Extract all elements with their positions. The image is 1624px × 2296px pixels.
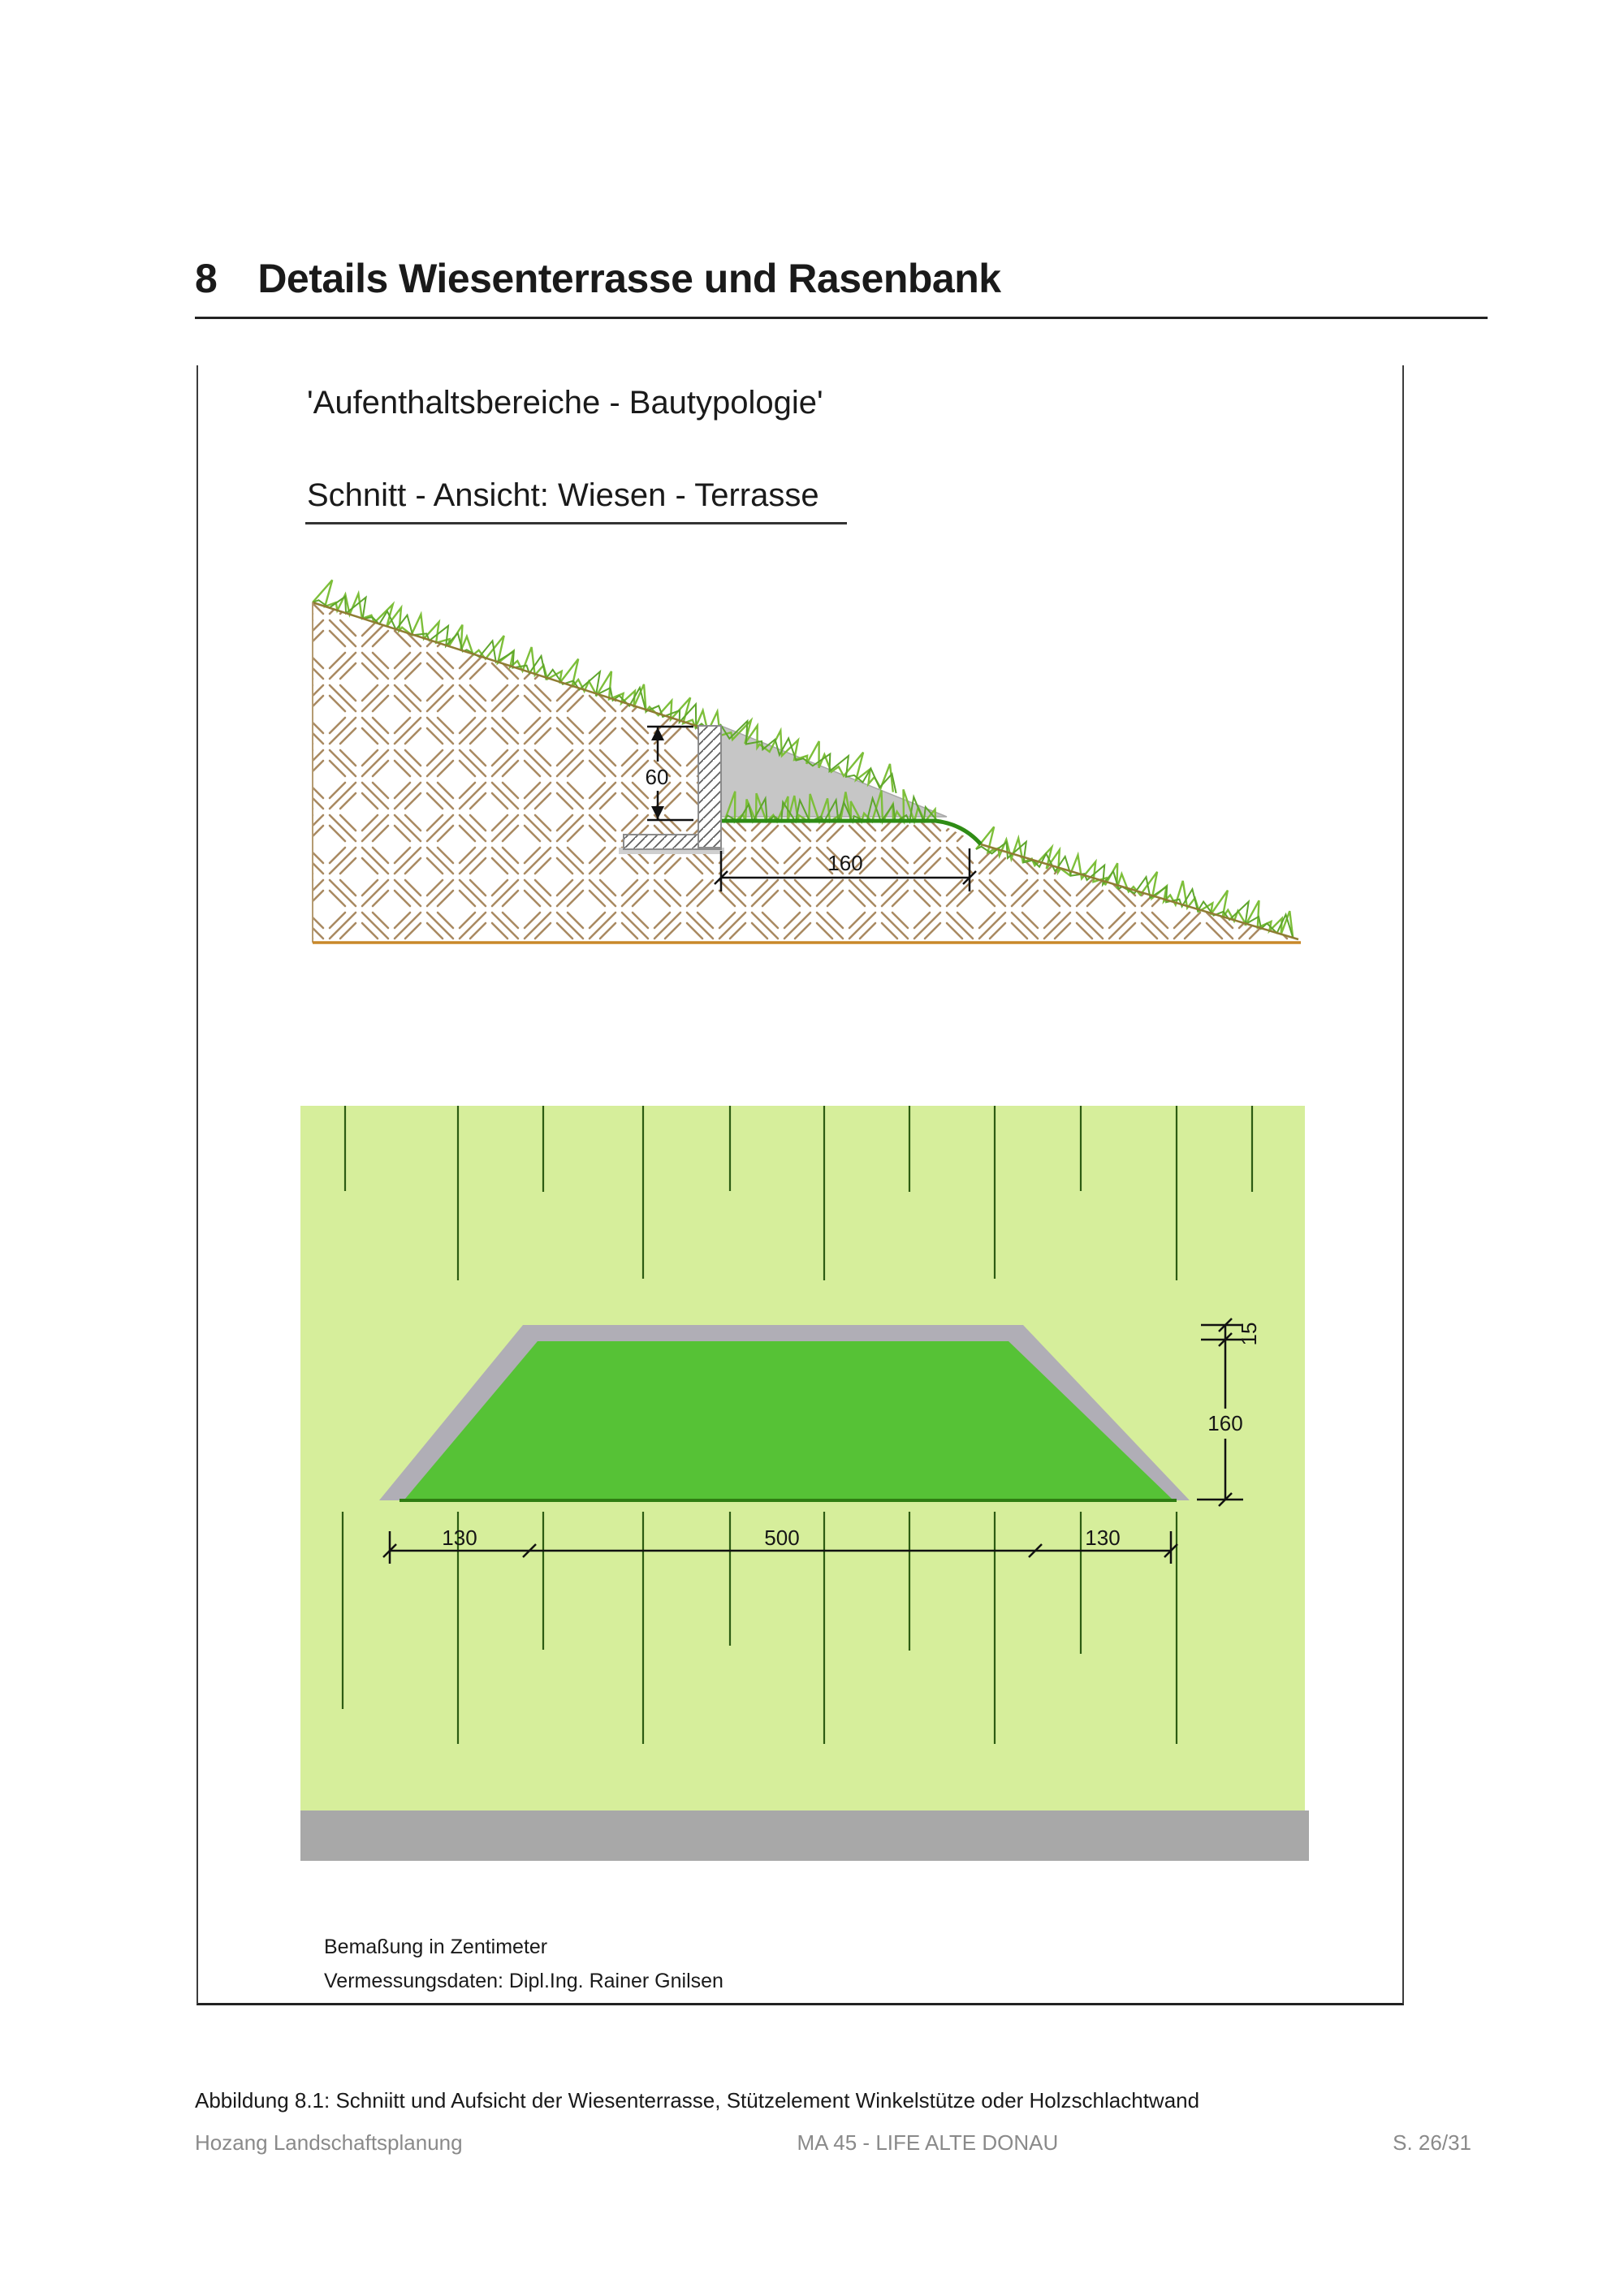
dim-label-wall-height: 60 [646,765,669,789]
note-scale: Bemaßung in Zentimeter [324,1936,547,1959]
figure-drawing: 60 160 [198,365,1402,2003]
cross-section-drawing: 60 160 [313,580,1301,943]
dim-label-depth: 160 [1207,1411,1242,1435]
footer-company: Hozang Landschaftsplanung [195,2130,463,2156]
title-rule [195,317,1488,319]
document-page: 8 Details Wiesenterrasse und Rasenbank [0,0,1624,2296]
plan-view-drawing: 15 160 130 500 130 [300,1106,1309,1861]
page-footer: Hozang Landschaftsplanung MA 45 - LIFE A… [195,2130,1471,2156]
dim-label-right: 130 [1085,1526,1120,1550]
figure-section-title: Schnitt - Ansicht: Wiesen - Terrasse [305,477,847,524]
dim-label-width: 500 [764,1526,799,1550]
figure-frame: 60 160 [197,365,1404,2005]
dim-label-terrace-width: 160 [827,851,862,875]
figure-caption: Abbildung 8.1: Schniitt und Aufsicht der… [195,2088,1494,2113]
footer-page-number: S. 26/31 [1393,2130,1471,2156]
dim-label-edge: 15 [1237,1323,1261,1346]
figure-subtitle: 'Aufenthaltsbereiche - Bautypologie' [307,385,823,421]
note-surveyor: Vermessungsdaten: Dipl.Ing. Rainer Gnils… [324,1970,723,1993]
chapter-title: Details Wiesenterrasse und Rasenbank [257,255,1000,302]
dim-label-left: 130 [442,1526,477,1550]
wall-stem [698,726,721,848]
footing-bar [300,1810,1309,1861]
chapter-number: 8 [195,255,217,302]
page-title: 8 Details Wiesenterrasse und Rasenbank [195,255,1001,302]
footer-project: MA 45 - LIFE ALTE DONAU [797,2130,1059,2156]
